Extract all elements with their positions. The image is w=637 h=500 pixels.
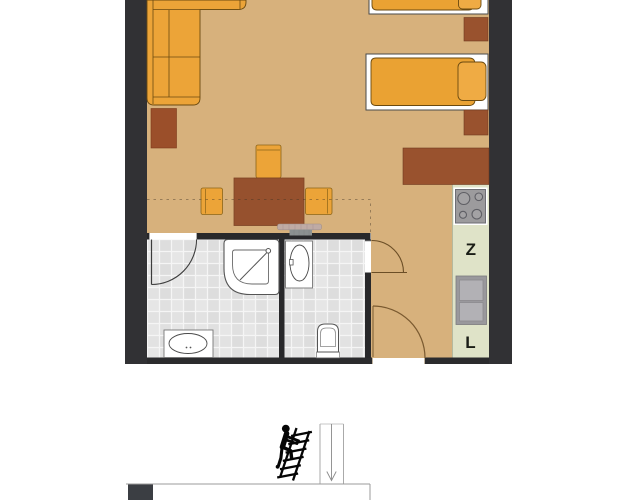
svg-text:L: L bbox=[465, 333, 475, 352]
svg-text:Z: Z bbox=[466, 240, 476, 259]
